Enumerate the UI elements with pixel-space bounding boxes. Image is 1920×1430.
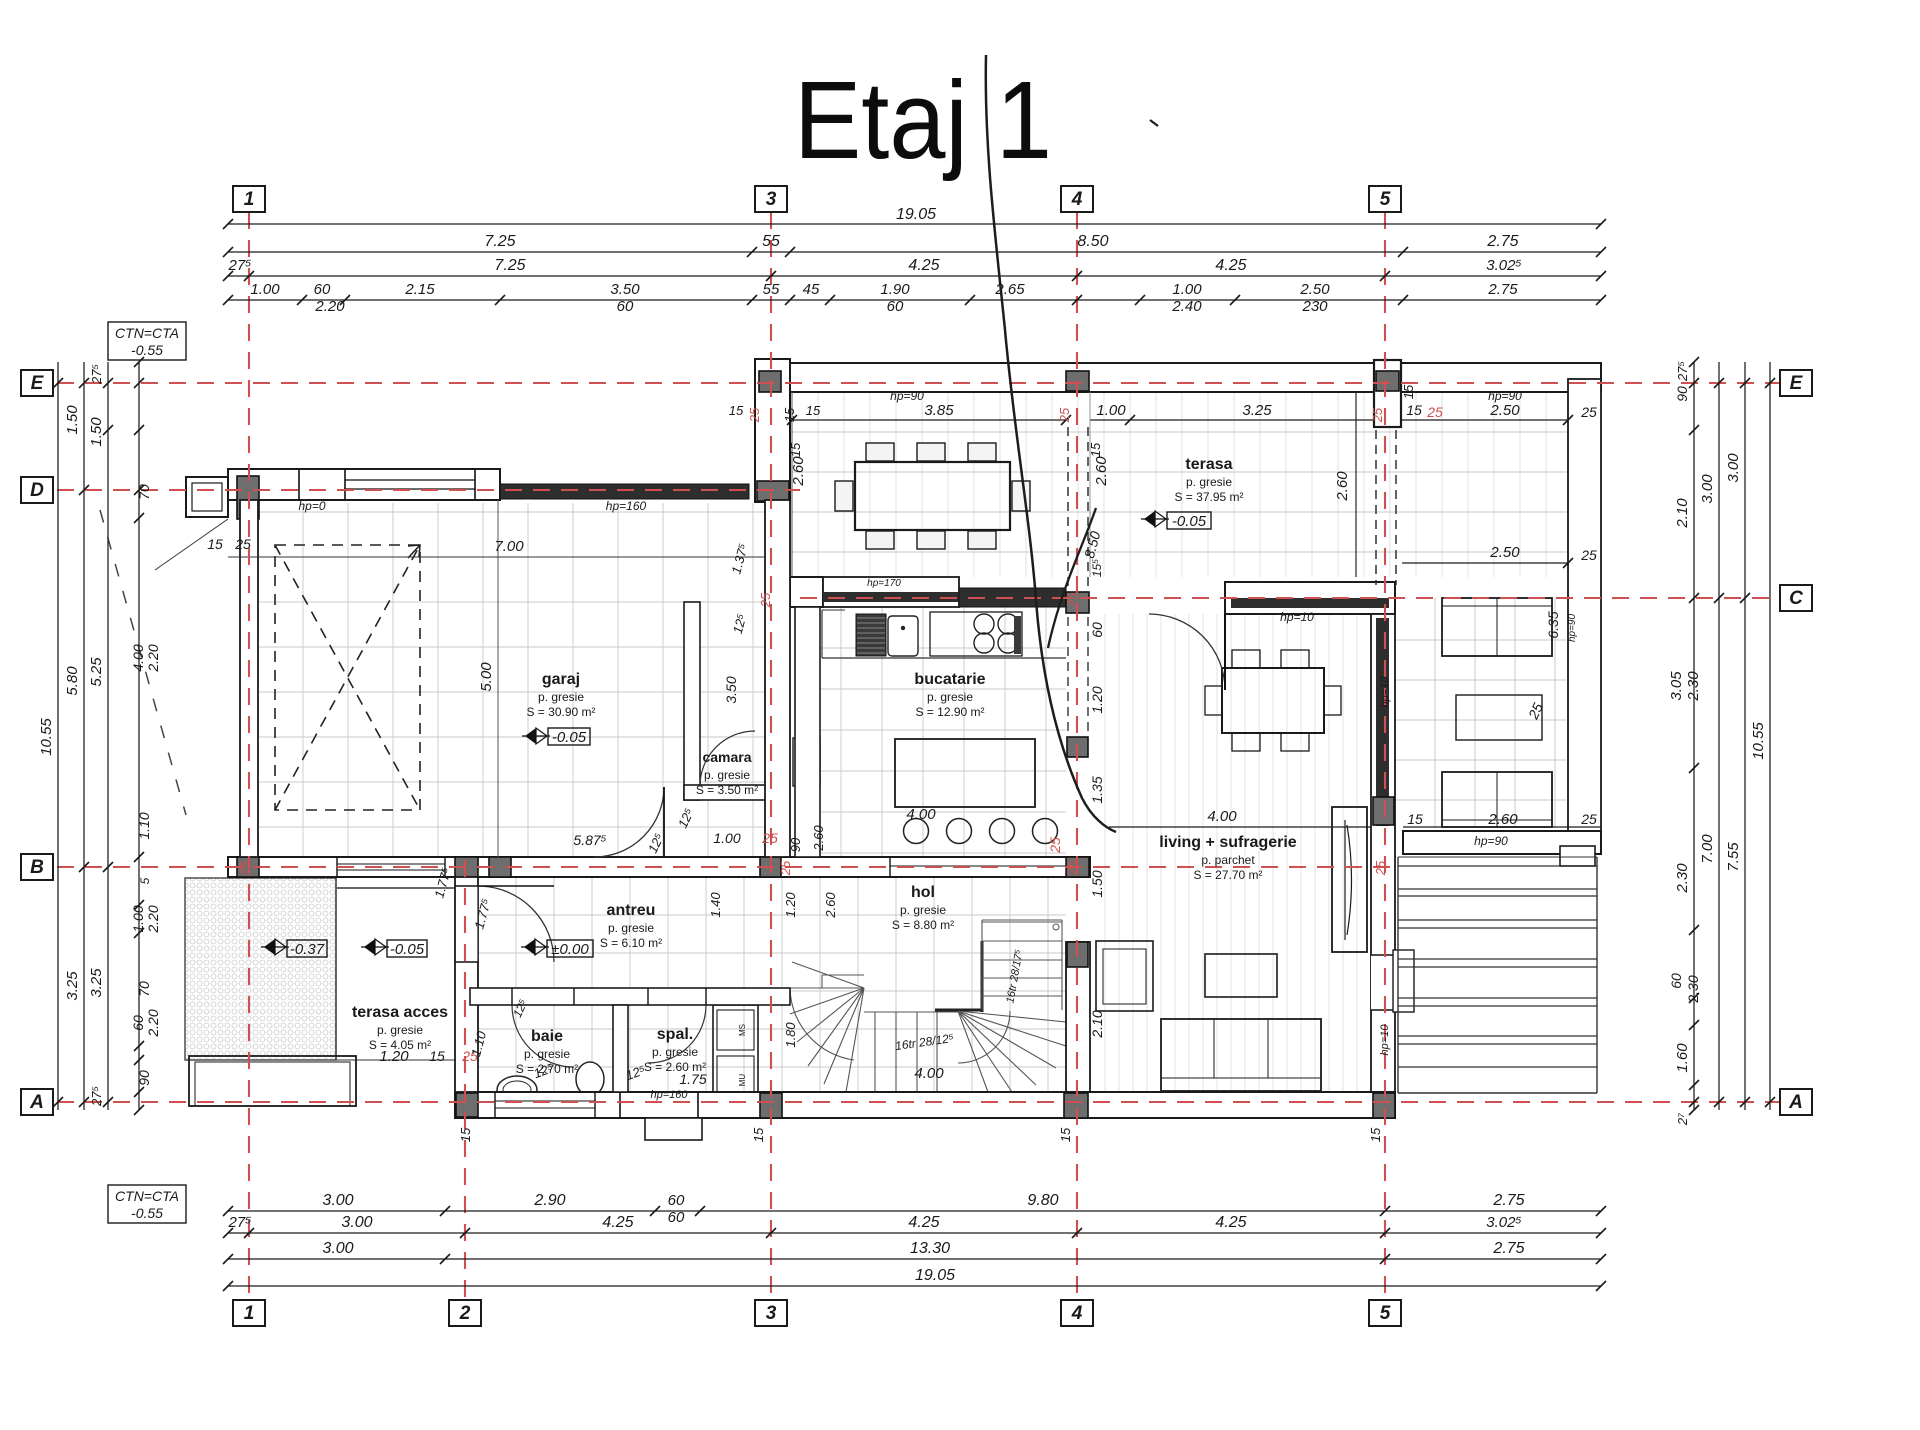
svg-text:2.30: 2.30 — [1685, 975, 1701, 1003]
svg-text:7.00: 7.00 — [494, 538, 524, 555]
svg-text:25: 25 — [1580, 811, 1597, 827]
svg-text:p. gresie: p. gresie — [652, 1045, 698, 1059]
svg-text:1.50: 1.50 — [64, 405, 81, 435]
svg-text:25: 25 — [1065, 860, 1080, 876]
svg-text:3.02⁵: 3.02⁵ — [1486, 1214, 1522, 1231]
svg-text:5.87⁵: 5.87⁵ — [573, 832, 606, 848]
svg-text:Etaj 1: Etaj 1 — [794, 59, 1052, 182]
svg-text:A: A — [1788, 1092, 1803, 1113]
svg-text:2.15: 2.15 — [404, 281, 435, 298]
svg-text:2.10: 2.10 — [1089, 1010, 1105, 1038]
svg-text:S = 2.60 m²: S = 2.60 m² — [644, 1060, 706, 1074]
svg-text:7.55: 7.55 — [1725, 842, 1742, 872]
svg-text:8.50: 8.50 — [1077, 233, 1108, 250]
svg-text:2.50: 2.50 — [1299, 281, 1330, 298]
svg-text:10.55: 10.55 — [38, 718, 55, 756]
svg-text:hp=160: hp=160 — [606, 499, 647, 513]
svg-text:2.20: 2.20 — [145, 905, 161, 933]
svg-text:15: 15 — [1407, 811, 1423, 827]
svg-text:MU: MU — [738, 1074, 747, 1087]
svg-text:9.80: 9.80 — [1027, 1192, 1058, 1209]
svg-text:15: 15 — [1088, 442, 1103, 457]
svg-text:1.00: 1.00 — [713, 830, 740, 846]
svg-text:terasa acces: terasa acces — [352, 1004, 448, 1021]
svg-text:25: 25 — [761, 830, 778, 846]
svg-text:60: 60 — [1668, 973, 1684, 989]
svg-text:S = 12.90 m²: S = 12.90 m² — [915, 705, 984, 719]
svg-text:3.50: 3.50 — [610, 281, 640, 298]
svg-text:-0.05: -0.05 — [1172, 513, 1207, 530]
svg-text:15: 15 — [1406, 402, 1422, 418]
svg-text:15⁵: 15⁵ — [1090, 559, 1104, 577]
svg-text:1.50: 1.50 — [1089, 870, 1105, 897]
svg-text:60: 60 — [1089, 622, 1105, 638]
svg-text:4.00: 4.00 — [914, 1065, 944, 1082]
svg-text:15: 15 — [751, 1127, 766, 1142]
svg-text:1.10: 1.10 — [136, 812, 152, 839]
svg-text:4.00: 4.00 — [1207, 808, 1237, 825]
svg-text:A: A — [29, 1092, 44, 1113]
svg-text:3.25: 3.25 — [1242, 402, 1272, 419]
svg-text:15: 15 — [1401, 384, 1416, 399]
svg-text:B: B — [30, 857, 44, 878]
svg-text:CTN=CTA: CTN=CTA — [115, 325, 179, 341]
svg-text:p. gresie: p. gresie — [1186, 475, 1232, 489]
svg-text:E: E — [31, 373, 45, 394]
svg-text:-0.05: -0.05 — [552, 729, 587, 746]
svg-text:45: 45 — [803, 281, 820, 298]
svg-text:4.25: 4.25 — [908, 257, 939, 274]
svg-text:E: E — [1790, 373, 1804, 394]
svg-text:camara: camara — [702, 749, 751, 765]
svg-text:90: 90 — [136, 1070, 152, 1086]
svg-text:55: 55 — [763, 281, 780, 298]
svg-text:1.50: 1.50 — [88, 417, 105, 447]
svg-text:p. gresie: p. gresie — [524, 1047, 570, 1061]
svg-text:27⁵: 27⁵ — [89, 1086, 104, 1107]
svg-text:15: 15 — [207, 536, 223, 552]
svg-text:hp=10: hp=10 — [1379, 676, 1391, 708]
svg-text:p. gresie: p. gresie — [927, 690, 973, 704]
svg-text:3.00: 3.00 — [322, 1240, 353, 1257]
svg-text:70: 70 — [136, 484, 152, 500]
svg-text:2.75: 2.75 — [1492, 1192, 1524, 1209]
svg-text:CTN=CTA: CTN=CTA — [115, 1188, 179, 1204]
svg-text:S = 2.70 m²: S = 2.70 m² — [516, 1062, 578, 1076]
svg-text:19.05: 19.05 — [915, 1267, 955, 1284]
svg-text:15: 15 — [782, 407, 797, 422]
svg-text:1.60: 1.60 — [1674, 1043, 1691, 1073]
svg-text:4.25: 4.25 — [1215, 257, 1246, 274]
svg-text:25: 25 — [1370, 407, 1385, 423]
svg-text:90: 90 — [1674, 386, 1690, 402]
svg-text:3.00: 3.00 — [1699, 474, 1716, 504]
svg-text:4.00: 4.00 — [906, 806, 936, 823]
svg-text:hp=10: hp=10 — [1280, 610, 1314, 624]
svg-text:5: 5 — [1380, 1303, 1391, 1324]
svg-text:1: 1 — [244, 189, 255, 210]
svg-text:13.30: 13.30 — [910, 1240, 950, 1257]
svg-text:27⁵: 27⁵ — [228, 257, 252, 274]
svg-text:5.00: 5.00 — [478, 662, 495, 692]
svg-text:1.35: 1.35 — [1089, 776, 1105, 803]
svg-text:230: 230 — [1301, 298, 1328, 315]
svg-text:90: 90 — [788, 837, 803, 852]
svg-text:2.60: 2.60 — [1334, 471, 1351, 502]
svg-text:hol: hol — [911, 884, 935, 901]
svg-text:60: 60 — [130, 1015, 146, 1031]
svg-text:-0.05: -0.05 — [390, 941, 425, 958]
svg-text:15: 15 — [806, 403, 821, 418]
svg-text:19.05: 19.05 — [896, 206, 936, 223]
svg-text:15: 15 — [1368, 1127, 1383, 1142]
svg-text:25: 25 — [1065, 592, 1080, 608]
svg-text:terasa: terasa — [1185, 456, 1232, 473]
svg-text:3.05: 3.05 — [1668, 671, 1685, 701]
svg-text:spal.: spal. — [657, 1026, 693, 1043]
svg-text:27⁵: 27⁵ — [89, 364, 104, 385]
svg-text:p. gresie: p. gresie — [704, 768, 750, 782]
svg-text:27⁵: 27⁵ — [228, 1214, 252, 1231]
svg-text:5.25: 5.25 — [88, 657, 105, 687]
svg-text:3.85: 3.85 — [924, 402, 954, 419]
svg-text:2.75: 2.75 — [1486, 233, 1518, 250]
svg-text:5: 5 — [138, 877, 152, 884]
svg-text:10.55: 10.55 — [1750, 722, 1767, 760]
svg-text:25: 25 — [1580, 404, 1597, 420]
svg-text:60: 60 — [887, 298, 904, 315]
svg-text:S = 6.10 m²: S = 6.10 m² — [600, 936, 662, 950]
svg-text:2.75: 2.75 — [1487, 281, 1518, 298]
svg-text:7.00: 7.00 — [1699, 834, 1716, 864]
svg-text:1: 1 — [244, 1303, 255, 1324]
svg-text:hp=90: hp=90 — [1488, 389, 1522, 403]
svg-text:15: 15 — [429, 1048, 445, 1064]
svg-text:3.25: 3.25 — [88, 968, 105, 998]
svg-text:p. gresie: p. gresie — [377, 1023, 423, 1037]
svg-text:S = 27.70 m²: S = 27.70 m² — [1193, 868, 1262, 882]
svg-text:hp=0: hp=0 — [298, 499, 325, 513]
svg-text:1.40: 1.40 — [708, 892, 723, 918]
svg-text:bucatarie: bucatarie — [914, 671, 985, 688]
svg-text:hp=90: hp=90 — [1474, 834, 1508, 848]
svg-text:60: 60 — [668, 1192, 685, 1209]
svg-text:25: 25 — [747, 407, 762, 423]
svg-text:2.60: 2.60 — [823, 892, 838, 919]
svg-text:3.00: 3.00 — [322, 1192, 353, 1209]
svg-text:25: 25 — [1373, 860, 1388, 876]
svg-text:1.80: 1.80 — [783, 1022, 798, 1048]
svg-text:1.20: 1.20 — [1089, 686, 1105, 713]
svg-text:2.60: 2.60 — [811, 825, 826, 852]
svg-text:2.50: 2.50 — [1489, 402, 1520, 419]
svg-text:1.00: 1.00 — [250, 281, 280, 298]
svg-text:garaj: garaj — [542, 671, 580, 688]
svg-text:2: 2 — [459, 1303, 471, 1324]
svg-text:3.02⁵: 3.02⁵ — [1486, 257, 1522, 274]
svg-text:1.00: 1.00 — [1172, 281, 1202, 298]
svg-text:2.20: 2.20 — [145, 644, 161, 672]
svg-text:7.25: 7.25 — [494, 257, 525, 274]
svg-text:2.30: 2.30 — [1674, 863, 1691, 894]
svg-text:5: 5 — [1380, 189, 1391, 210]
svg-text:25: 25 — [1057, 407, 1072, 423]
svg-text:S = 37.95 m²: S = 37.95 m² — [1174, 490, 1243, 504]
svg-text:2.75: 2.75 — [1492, 1240, 1524, 1257]
svg-text:antreu: antreu — [607, 902, 656, 919]
svg-text:hp=10: hp=10 — [1379, 1024, 1391, 1056]
svg-text:60: 60 — [668, 1209, 685, 1226]
svg-text:S = 3.50 m²: S = 3.50 m² — [696, 783, 758, 797]
svg-text:2⁷: 2⁷ — [1675, 1112, 1690, 1126]
svg-text:25: 25 — [237, 860, 252, 876]
svg-text:27⁵: 27⁵ — [1675, 361, 1690, 382]
svg-text:25: 25 — [1047, 837, 1063, 854]
svg-text:3.50: 3.50 — [723, 676, 739, 703]
svg-text:2.60: 2.60 — [1487, 811, 1518, 828]
svg-text:S = 30.90 m²: S = 30.90 m² — [526, 705, 595, 719]
svg-text:1.00: 1.00 — [130, 905, 146, 932]
svg-text:25: 25 — [1580, 547, 1597, 563]
svg-text:25: 25 — [758, 592, 773, 608]
svg-text:3: 3 — [766, 189, 777, 210]
svg-text:1.90: 1.90 — [880, 281, 910, 298]
svg-text:4: 4 — [1071, 189, 1083, 210]
svg-text:2.50: 2.50 — [1489, 544, 1520, 561]
svg-text:25: 25 — [1426, 404, 1443, 420]
svg-text:hp=160: hp=160 — [650, 1089, 688, 1101]
svg-text:-0.55: -0.55 — [131, 342, 163, 358]
svg-text:3: 3 — [766, 1303, 777, 1324]
svg-text:60: 60 — [617, 298, 634, 315]
svg-text:2.10: 2.10 — [1674, 498, 1691, 529]
svg-text:baie: baie — [531, 1028, 563, 1045]
svg-text:D: D — [30, 480, 44, 501]
svg-text:6.35: 6.35 — [1545, 611, 1561, 638]
svg-text:15: 15 — [729, 403, 744, 418]
svg-text:15: 15 — [458, 1127, 473, 1142]
svg-text:7.25: 7.25 — [484, 233, 515, 250]
svg-text:3.25: 3.25 — [64, 971, 81, 1001]
svg-text:4: 4 — [1071, 1303, 1083, 1324]
svg-text:25: 25 — [778, 860, 793, 876]
svg-text:5.80: 5.80 — [64, 666, 81, 696]
svg-text:4.25: 4.25 — [602, 1214, 633, 1231]
svg-text:4.25: 4.25 — [1215, 1214, 1246, 1231]
svg-text:3.00: 3.00 — [341, 1214, 372, 1231]
svg-text:S = 8.80 m²: S = 8.80 m² — [892, 918, 954, 932]
svg-text:-0.55: -0.55 — [131, 1205, 163, 1221]
svg-text:2.20: 2.20 — [145, 1009, 161, 1037]
svg-text:2.40: 2.40 — [1171, 298, 1202, 315]
svg-text:2.90: 2.90 — [533, 1192, 565, 1209]
svg-text:hp=90: hp=90 — [890, 389, 924, 403]
svg-text:hp=90: hp=90 — [1567, 614, 1578, 643]
svg-text:1.00: 1.00 — [1096, 402, 1126, 419]
svg-text:living + sufragerie: living + sufragerie — [1159, 834, 1296, 851]
svg-text:p. gresie: p. gresie — [538, 690, 584, 704]
svg-text:C: C — [1789, 588, 1803, 609]
svg-text:55: 55 — [762, 233, 780, 250]
svg-text:2.60: 2.60 — [1093, 456, 1110, 487]
svg-text:3.00: 3.00 — [1725, 453, 1742, 483]
svg-text:p. parchet: p. parchet — [1201, 853, 1255, 867]
svg-text:60: 60 — [314, 281, 331, 298]
svg-text:2.20: 2.20 — [314, 298, 345, 315]
svg-text:15: 15 — [1058, 1127, 1073, 1142]
svg-text:±0.00: ±0.00 — [551, 941, 589, 958]
svg-text:4.00: 4.00 — [130, 644, 146, 671]
svg-text:15: 15 — [788, 442, 803, 457]
svg-text:1.20: 1.20 — [783, 892, 798, 918]
svg-text:S = 4.05 m²: S = 4.05 m² — [369, 1038, 431, 1052]
svg-text:2.30: 2.30 — [1685, 671, 1702, 702]
svg-text:p. gresie: p. gresie — [608, 921, 654, 935]
svg-text:70: 70 — [136, 981, 152, 997]
svg-text:4.25: 4.25 — [908, 1214, 939, 1231]
svg-text:p. gresie: p. gresie — [900, 903, 946, 917]
svg-text:MS: MS — [738, 1024, 747, 1036]
svg-text:hp=170: hp=170 — [867, 578, 901, 589]
svg-text:2.60: 2.60 — [790, 456, 807, 487]
svg-text:-0.37: -0.37 — [290, 941, 325, 958]
